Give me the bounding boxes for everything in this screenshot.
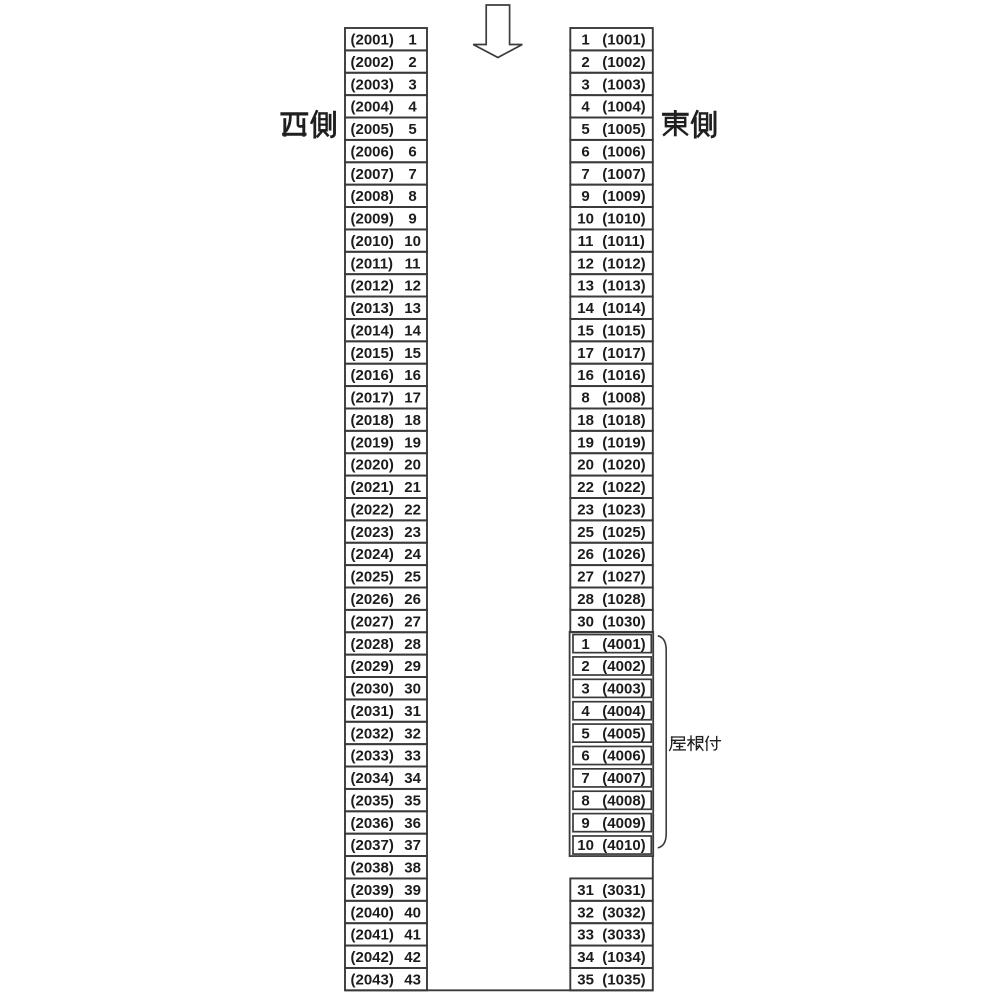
svg-text:(1001): (1001) [602,31,645,48]
svg-text:13: 13 [404,300,421,317]
svg-text:(4004): (4004) [602,703,645,720]
svg-text:(1028): (1028) [602,591,645,608]
svg-text:2: 2 [408,54,416,71]
svg-text:(1013): (1013) [602,278,645,295]
svg-text:28: 28 [577,591,594,608]
svg-text:14: 14 [577,300,594,317]
svg-text:42: 42 [404,949,421,966]
svg-text:(1007): (1007) [602,166,645,183]
svg-text:(1030): (1030) [602,613,645,630]
svg-text:(2034): (2034) [351,770,394,787]
svg-text:22: 22 [404,501,421,518]
svg-text:5: 5 [581,725,589,742]
svg-text:28: 28 [404,636,421,653]
svg-text:19: 19 [404,434,421,451]
svg-text:3: 3 [581,76,589,93]
svg-text:2: 2 [581,658,589,675]
svg-text:17: 17 [404,390,421,407]
svg-text:(2037): (2037) [351,837,394,854]
svg-text:(2019): (2019) [351,434,394,451]
svg-text:31: 31 [577,882,594,899]
svg-text:(1025): (1025) [602,524,645,541]
svg-text:(2004): (2004) [351,99,394,116]
svg-text:(2003): (2003) [351,76,394,93]
svg-text:(1011): (1011) [602,233,645,250]
svg-text:3: 3 [581,681,589,698]
svg-text:4: 4 [408,99,417,116]
svg-text:(2016): (2016) [351,367,394,384]
svg-text:43: 43 [404,971,421,988]
svg-text:(2013): (2013) [351,300,394,317]
svg-text:(2020): (2020) [351,457,394,474]
svg-text:12: 12 [577,255,594,272]
svg-text:(1035): (1035) [602,971,645,988]
svg-text:2: 2 [581,54,589,71]
svg-text:12: 12 [404,278,421,295]
svg-text:26: 26 [404,591,421,608]
svg-text:(2007): (2007) [351,166,394,183]
svg-text:1: 1 [408,31,416,48]
svg-text:33: 33 [577,927,594,944]
svg-text:(2039): (2039) [351,882,394,899]
svg-text:(1026): (1026) [602,546,645,563]
svg-text:5: 5 [408,121,416,138]
svg-text:(2024): (2024) [351,546,394,563]
svg-text:(2018): (2018) [351,412,394,429]
svg-text:(2023): (2023) [351,524,394,541]
svg-text:(2043): (2043) [351,971,394,988]
svg-text:22: 22 [577,479,594,496]
svg-text:21: 21 [404,479,421,496]
svg-text:31: 31 [404,703,421,720]
svg-text:(4007): (4007) [602,770,645,787]
svg-text:(2041): (2041) [351,927,394,944]
svg-text:(1002): (1002) [602,54,645,71]
svg-text:25: 25 [577,524,594,541]
svg-text:38: 38 [404,860,421,877]
svg-text:41: 41 [404,927,421,944]
svg-text:(4010): (4010) [602,837,645,854]
svg-text:32: 32 [577,904,594,921]
svg-text:(2033): (2033) [351,748,394,765]
svg-text:27: 27 [577,569,594,586]
svg-text:(1005): (1005) [602,121,645,138]
svg-text:15: 15 [577,322,594,339]
svg-text:10: 10 [577,211,594,228]
svg-text:8: 8 [408,188,416,205]
svg-text:(2012): (2012) [351,278,394,295]
svg-text:18: 18 [404,412,421,429]
svg-text:14: 14 [404,322,421,339]
svg-text:(1017): (1017) [602,345,645,362]
svg-text:(2040): (2040) [351,904,394,921]
svg-text:7: 7 [408,166,416,183]
svg-text:(1004): (1004) [602,99,645,116]
svg-text:32: 32 [404,725,421,742]
svg-text:(2022): (2022) [351,501,394,518]
svg-text:35: 35 [404,792,421,809]
svg-text:(2026): (2026) [351,591,394,608]
svg-text:24: 24 [404,546,421,563]
svg-text:(2014): (2014) [351,322,394,339]
svg-text:(4008): (4008) [602,792,645,809]
svg-text:(2006): (2006) [351,143,394,160]
svg-text:19: 19 [577,434,594,451]
svg-text:(2015): (2015) [351,345,394,362]
svg-text:(2029): (2029) [351,658,394,675]
svg-text:(2027): (2027) [351,613,394,630]
svg-text:10: 10 [577,837,594,854]
svg-text:23: 23 [577,501,594,518]
svg-text:1: 1 [581,636,589,653]
svg-text:9: 9 [581,188,589,205]
svg-text:(3032): (3032) [602,904,645,921]
svg-text:6: 6 [581,143,589,160]
svg-text:(2031): (2031) [351,703,394,720]
svg-text:8: 8 [581,390,589,407]
svg-text:(4002): (4002) [602,658,645,675]
svg-text:(4009): (4009) [602,815,645,832]
svg-text:23: 23 [404,524,421,541]
svg-text:(4006): (4006) [602,748,645,765]
svg-text:33: 33 [404,748,421,765]
svg-text:(1016): (1016) [602,367,645,384]
svg-text:(1006): (1006) [602,143,645,160]
svg-text:(1014): (1014) [602,300,645,317]
svg-text:(2011): (2011) [351,255,394,272]
svg-text:(2017): (2017) [351,390,394,407]
svg-text:11: 11 [405,255,421,272]
svg-text:20: 20 [404,457,421,474]
svg-text:(2028): (2028) [351,636,394,653]
svg-text:4: 4 [581,703,590,720]
svg-text:16: 16 [577,367,594,384]
svg-text:20: 20 [577,457,594,474]
svg-text:4: 4 [581,99,590,116]
svg-text:3: 3 [408,76,416,93]
svg-text:25: 25 [404,569,421,586]
svg-text:29: 29 [404,658,421,675]
svg-text:13: 13 [577,278,594,295]
svg-text:18: 18 [577,412,594,429]
svg-text:(2025): (2025) [351,569,394,586]
svg-text:6: 6 [408,143,416,160]
svg-text:(4003): (4003) [602,681,645,698]
svg-text:40: 40 [404,904,421,921]
svg-text:(1022): (1022) [602,479,645,496]
svg-text:36: 36 [404,815,421,832]
svg-text:(2008): (2008) [351,188,394,205]
svg-text:(1010): (1010) [602,211,645,228]
svg-text:(2009): (2009) [351,211,394,228]
svg-text:(4005): (4005) [602,725,645,742]
svg-text:(2001): (2001) [351,31,394,48]
svg-text:(1008): (1008) [602,390,645,407]
svg-text:26: 26 [577,546,594,563]
svg-text:(1018): (1018) [602,412,645,429]
svg-text:(1023): (1023) [602,501,645,518]
svg-text:(2035): (2035) [351,792,394,809]
svg-text:(1009): (1009) [602,188,645,205]
svg-text:27: 27 [404,613,421,630]
svg-text:34: 34 [577,949,594,966]
svg-text:35: 35 [577,971,594,988]
svg-text:10: 10 [404,233,421,250]
svg-text:(2036): (2036) [351,815,394,832]
svg-text:7: 7 [581,770,589,787]
svg-text:(1027): (1027) [602,569,645,586]
svg-text:(1034): (1034) [602,949,645,966]
svg-text:(2021): (2021) [351,479,394,496]
svg-text:16: 16 [404,367,421,384]
svg-text:9: 9 [581,815,589,832]
svg-text:(1015): (1015) [602,322,645,339]
svg-text:(2010): (2010) [351,233,394,250]
svg-text:8: 8 [581,792,589,809]
svg-text:(2032): (2032) [351,725,394,742]
svg-text:6: 6 [581,748,589,765]
svg-text:39: 39 [404,882,421,899]
svg-text:(3033): (3033) [602,927,645,944]
svg-text:(1020): (1020) [602,457,645,474]
svg-text:7: 7 [581,166,589,183]
svg-text:1: 1 [581,31,589,48]
svg-text:5: 5 [581,121,589,138]
svg-text:(4001): (4001) [602,636,645,653]
svg-text:(1019): (1019) [602,434,645,451]
svg-text:17: 17 [577,345,594,362]
svg-text:34: 34 [404,770,421,787]
svg-text:(2005): (2005) [351,121,394,138]
svg-text:15: 15 [404,345,421,362]
svg-text:(2038): (2038) [351,860,394,877]
svg-text:30: 30 [577,613,594,630]
svg-text:11: 11 [578,233,594,250]
svg-text:30: 30 [404,681,421,698]
svg-text:(3031): (3031) [602,882,645,899]
svg-text:37: 37 [404,837,421,854]
svg-text:(1012): (1012) [602,255,645,272]
svg-text:(2030): (2030) [351,681,394,698]
svg-text:(2042): (2042) [351,949,394,966]
svg-text:(2002): (2002) [351,54,394,71]
svg-text:9: 9 [408,211,416,228]
svg-text:(1003): (1003) [602,76,645,93]
